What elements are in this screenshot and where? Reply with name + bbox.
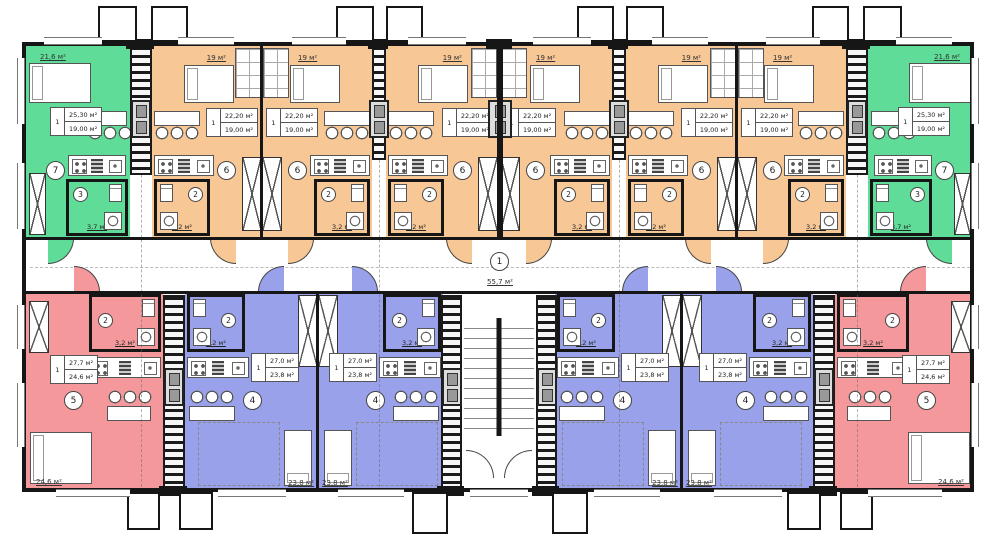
floor-plan: 21,6 м² 125,30 м²19,00 м² 7 33,7 м² 19 м… [0, 0, 1000, 543]
corridor-wall [26, 237, 974, 240]
shaft-junction-box [609, 100, 629, 138]
window [652, 37, 708, 45]
window [218, 489, 286, 497]
porch [127, 492, 160, 530]
party-wall [316, 293, 319, 490]
shaft-junction-box [369, 100, 389, 138]
window [971, 58, 979, 124]
window [408, 37, 466, 45]
window [971, 163, 979, 229]
window [971, 383, 979, 447]
window [17, 58, 25, 124]
party-wall [260, 45, 263, 237]
porch [98, 6, 137, 42]
party-wall [497, 45, 503, 237]
shaft-junction-box [847, 100, 867, 138]
entrance-door [470, 489, 528, 497]
window [17, 305, 25, 349]
window [338, 489, 404, 497]
window [896, 37, 952, 45]
window [714, 489, 782, 497]
porch [179, 492, 213, 530]
corridor-wall [26, 291, 974, 294]
window [533, 37, 591, 45]
window [292, 37, 346, 45]
porch [840, 492, 873, 530]
shaft-junction-box [164, 368, 184, 406]
window [44, 37, 102, 45]
shaft-junction-box [537, 368, 557, 406]
porch [412, 492, 448, 534]
porch [552, 492, 588, 534]
window [971, 305, 979, 349]
window [17, 383, 25, 447]
party-wall [735, 45, 738, 237]
shaft-junction-box [442, 368, 462, 406]
party-wall [680, 293, 683, 490]
porch [787, 492, 821, 530]
window [56, 489, 130, 497]
shaft-junction-box [814, 368, 834, 406]
shaft-junction-box [131, 100, 151, 138]
wall-column [486, 39, 512, 49]
window [178, 37, 234, 45]
window [17, 163, 25, 229]
window [766, 37, 820, 45]
window [594, 489, 660, 497]
window [868, 489, 942, 497]
